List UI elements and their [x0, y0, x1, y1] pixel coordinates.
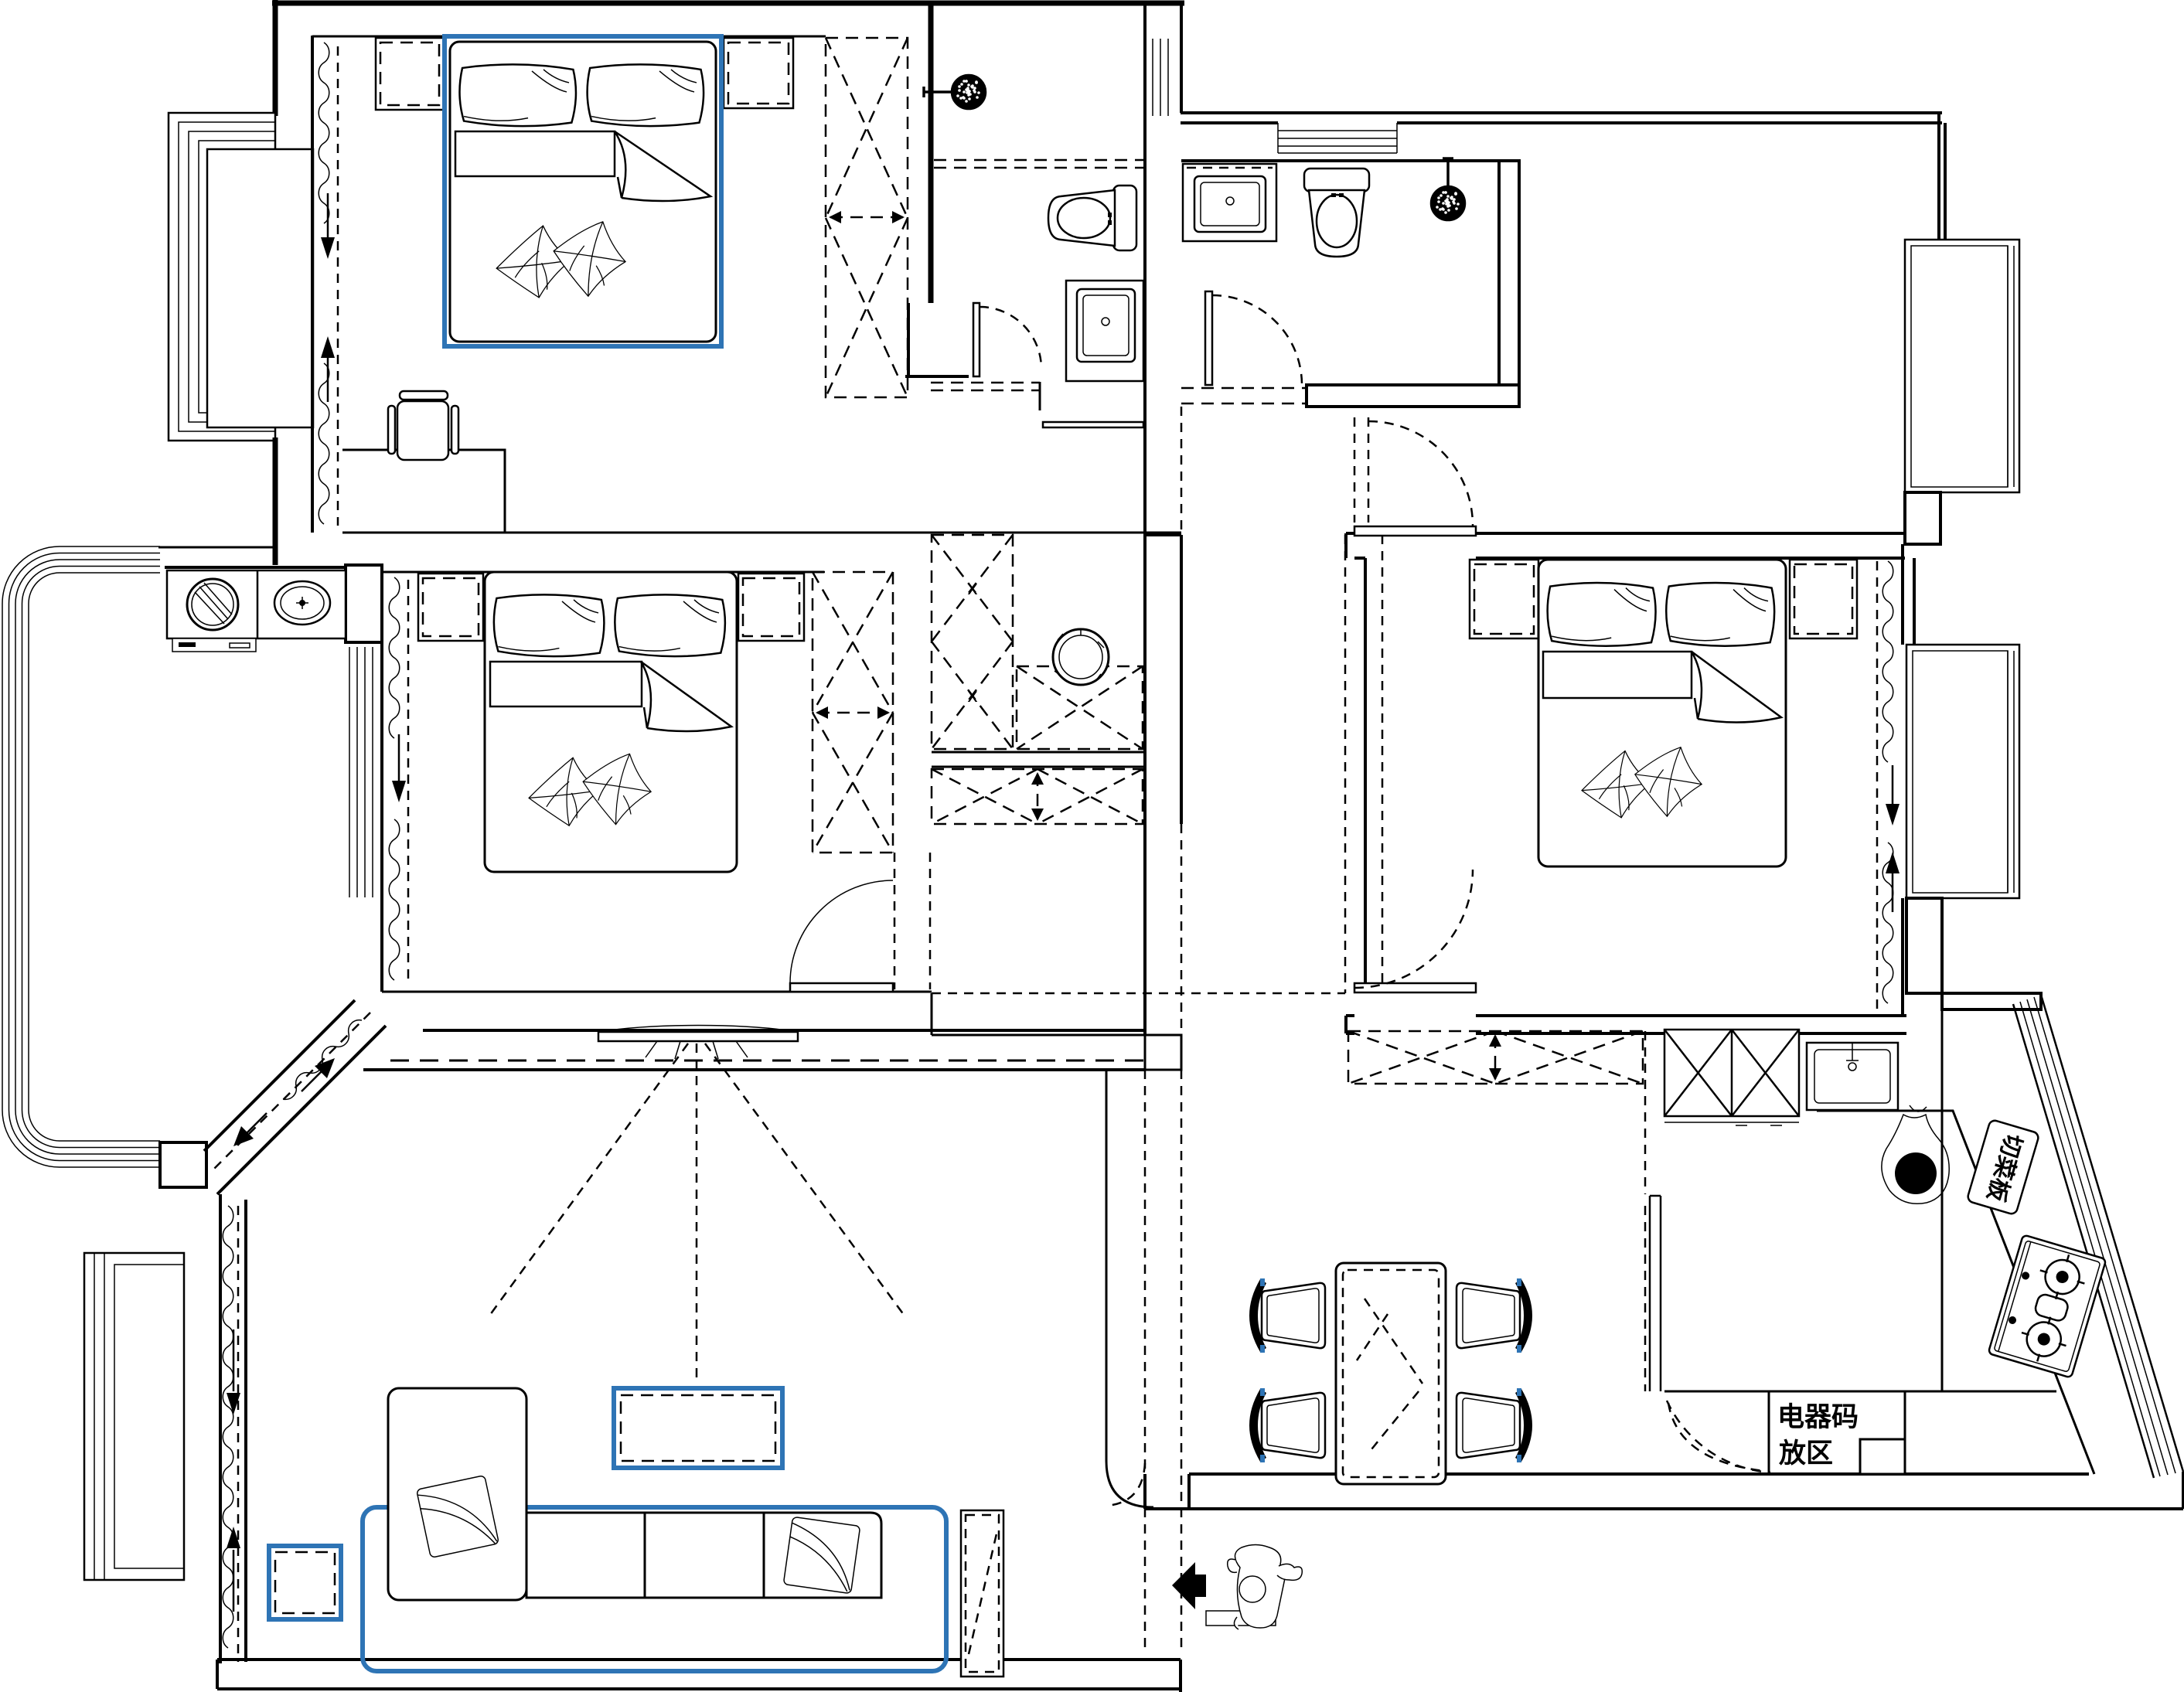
svg-text:放区: 放区 [1779, 1438, 1833, 1469]
svg-text:电器码: 电器码 [1777, 1402, 1859, 1432]
svg-text:x: x [968, 576, 978, 599]
svg-text:x: x [968, 683, 978, 706]
